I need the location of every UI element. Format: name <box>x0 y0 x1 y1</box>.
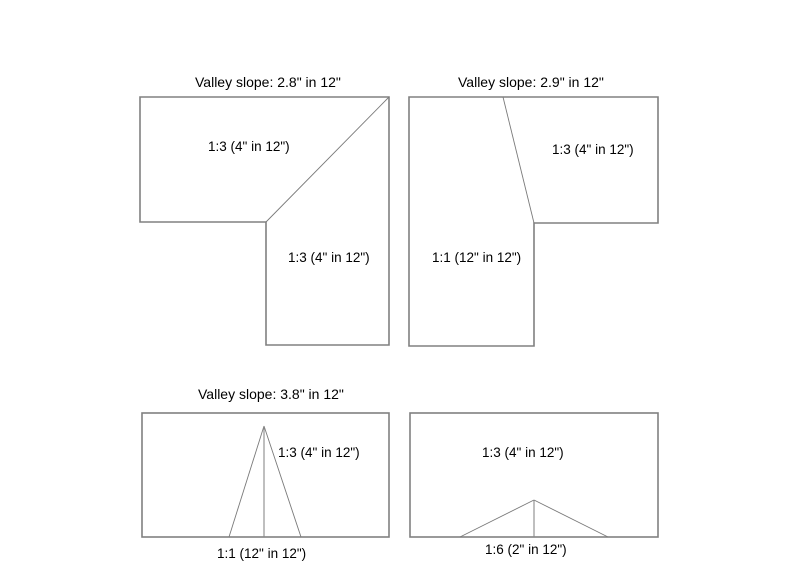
slope-label-top-left-upper: 1:3 (4" in 12") <box>208 139 290 155</box>
gable-left-slope-bottom-right <box>460 500 534 537</box>
slope-label-bottom-right-inner: 1:3 (4" in 12") <box>482 445 564 461</box>
diagram-title-top-right: Valley slope: 2.9" in 12" <box>458 74 604 90</box>
gable-right-slope-bottom-right <box>534 500 608 537</box>
diagram-title-top-left: Valley slope: 2.8" in 12" <box>195 74 341 90</box>
roof-outline-top-left <box>140 97 389 345</box>
diagram-canvas <box>0 0 800 586</box>
slope-label-bottom-right-below: 1:6 (2" in 12") <box>485 542 567 558</box>
slope-label-top-right-lower: 1:1 (12" in 12") <box>432 250 521 266</box>
gable-left-slope-bottom-left <box>229 426 264 537</box>
slope-label-bottom-left-inner: 1:3 (4" in 12") <box>278 445 360 461</box>
gable-right-slope-bottom-left <box>264 426 301 537</box>
valley-line-top-right <box>503 97 534 223</box>
slope-label-top-left-lower: 1:3 (4" in 12") <box>288 250 370 266</box>
valley-line-top-left <box>266 97 389 222</box>
roof-valley-diagram-page: Valley slope: 2.8" in 12" 1:3 (4" in 12"… <box>0 0 800 586</box>
diagram-title-bottom-left: Valley slope: 3.8" in 12" <box>198 386 344 402</box>
slope-label-bottom-left-below: 1:1 (12" in 12") <box>217 546 306 562</box>
slope-label-top-right-upper: 1:3 (4" in 12") <box>552 142 634 158</box>
